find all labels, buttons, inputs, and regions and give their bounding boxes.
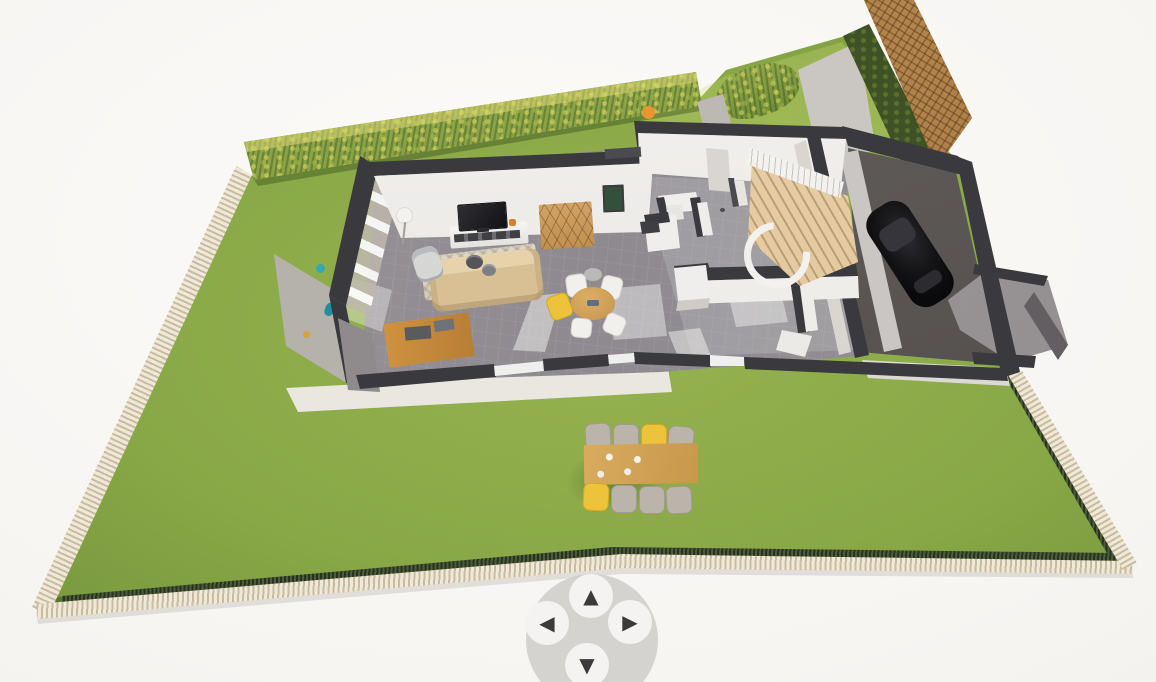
outdoor-chair[interactable] <box>639 486 665 514</box>
outdoor-table[interactable] <box>584 443 699 485</box>
outdoor-chair[interactable] <box>611 485 637 513</box>
coffee-basket[interactable] <box>482 264 496 276</box>
tv-stand-leg <box>477 228 489 233</box>
pan-up-button[interactable]: ▲ <box>569 574 613 618</box>
triangle-down-icon: ▼ <box>579 655 594 675</box>
table-plate <box>597 471 604 478</box>
wall-picture[interactable] <box>603 185 625 213</box>
outdoor-chair[interactable] <box>665 485 692 514</box>
garden-ball-orange[interactable] <box>642 106 655 119</box>
honeycomb-shelf[interactable] <box>538 201 594 250</box>
tv-decor-toy <box>509 219 516 226</box>
patio-plant-teal[interactable] <box>316 264 325 273</box>
table-decor <box>587 300 599 306</box>
patio-decor[interactable] <box>303 331 310 338</box>
table-plate <box>624 468 631 475</box>
outdoor-chair[interactable] <box>582 482 609 511</box>
camera-nav-pad: ▲ ◀ ▶ ▼ <box>526 574 658 682</box>
desk-laptop <box>404 325 431 340</box>
pendant-light <box>584 268 602 281</box>
hall-floor-drain <box>720 208 725 212</box>
pan-left-button[interactable]: ◀ <box>525 601 569 645</box>
car-windshield <box>876 215 919 255</box>
desk-pad <box>433 318 454 332</box>
triangle-up-icon: ▲ <box>583 586 598 606</box>
dining-chair-white[interactable] <box>570 317 593 339</box>
car-rear-window <box>912 268 945 296</box>
pan-down-button[interactable]: ▼ <box>565 643 609 682</box>
coffee-basket[interactable] <box>466 255 483 269</box>
table-plate <box>634 456 641 463</box>
tv[interactable] <box>457 201 508 231</box>
triangle-right-icon: ▶ <box>622 612 637 632</box>
table-plate <box>606 453 613 460</box>
triangle-left-icon: ◀ <box>539 613 554 633</box>
pan-right-button[interactable]: ▶ <box>608 600 652 644</box>
floorplan-3d-viewport[interactable]: ▲ ◀ ▶ ▼ <box>0 0 1156 682</box>
